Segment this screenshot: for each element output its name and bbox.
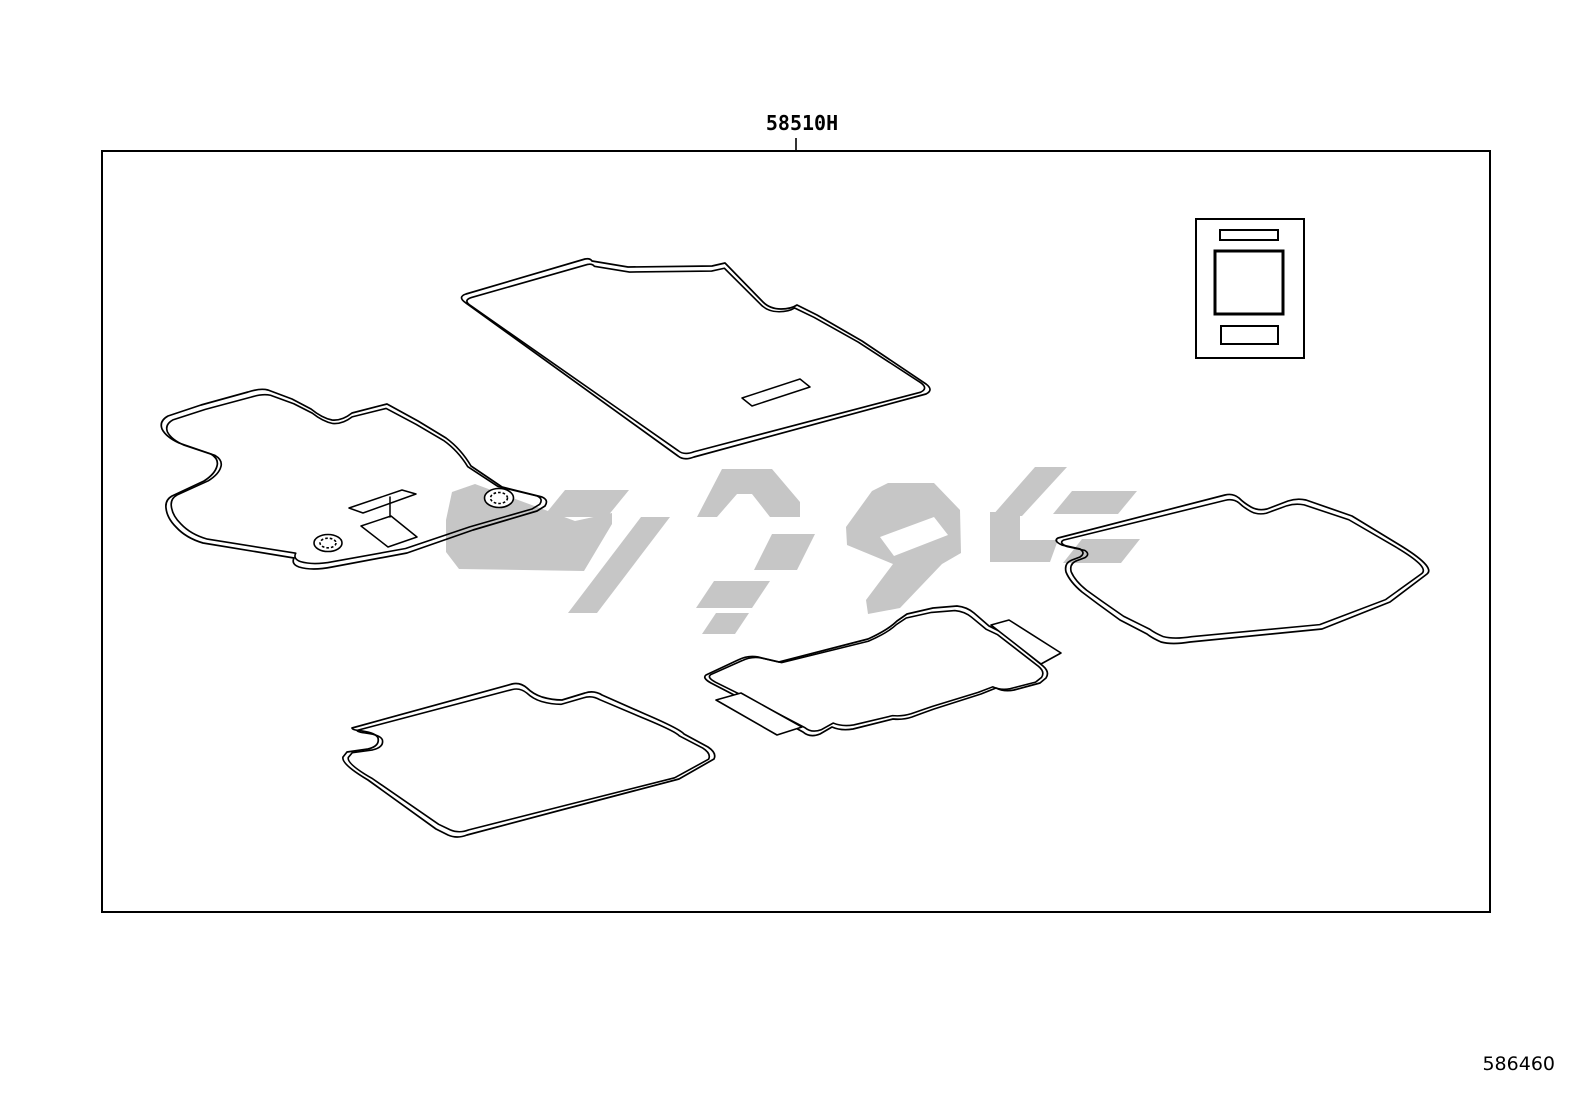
pad-square-marker [361, 516, 417, 547]
floor-mat-set-drawing [161, 219, 1428, 837]
figure-number: 586460 [1455, 1052, 1555, 1076]
rear-center-floor-mat [705, 606, 1061, 736]
part-number-callout[interactable]: 58510H [757, 110, 847, 136]
heel-pad-marker [349, 490, 416, 513]
mat-fastener-grommet [485, 489, 514, 508]
rear-right-floor-mat [1056, 494, 1429, 643]
instruction-tag [1196, 219, 1304, 358]
watermark-logo [446, 467, 1140, 634]
diagram-canvas [0, 0, 1592, 1099]
diagram-page: 58510H 586460 [0, 0, 1592, 1099]
tag-picture-box [1215, 251, 1283, 314]
tag-caption-bar [1221, 326, 1278, 344]
tag-title-bar [1220, 230, 1278, 240]
front-floor-mat [462, 259, 931, 459]
rear-left-floor-mat [343, 684, 715, 838]
heel-pad-marker [742, 379, 810, 406]
mat-fastener-grommet [314, 535, 342, 552]
mat-fixing-tab [716, 693, 802, 735]
